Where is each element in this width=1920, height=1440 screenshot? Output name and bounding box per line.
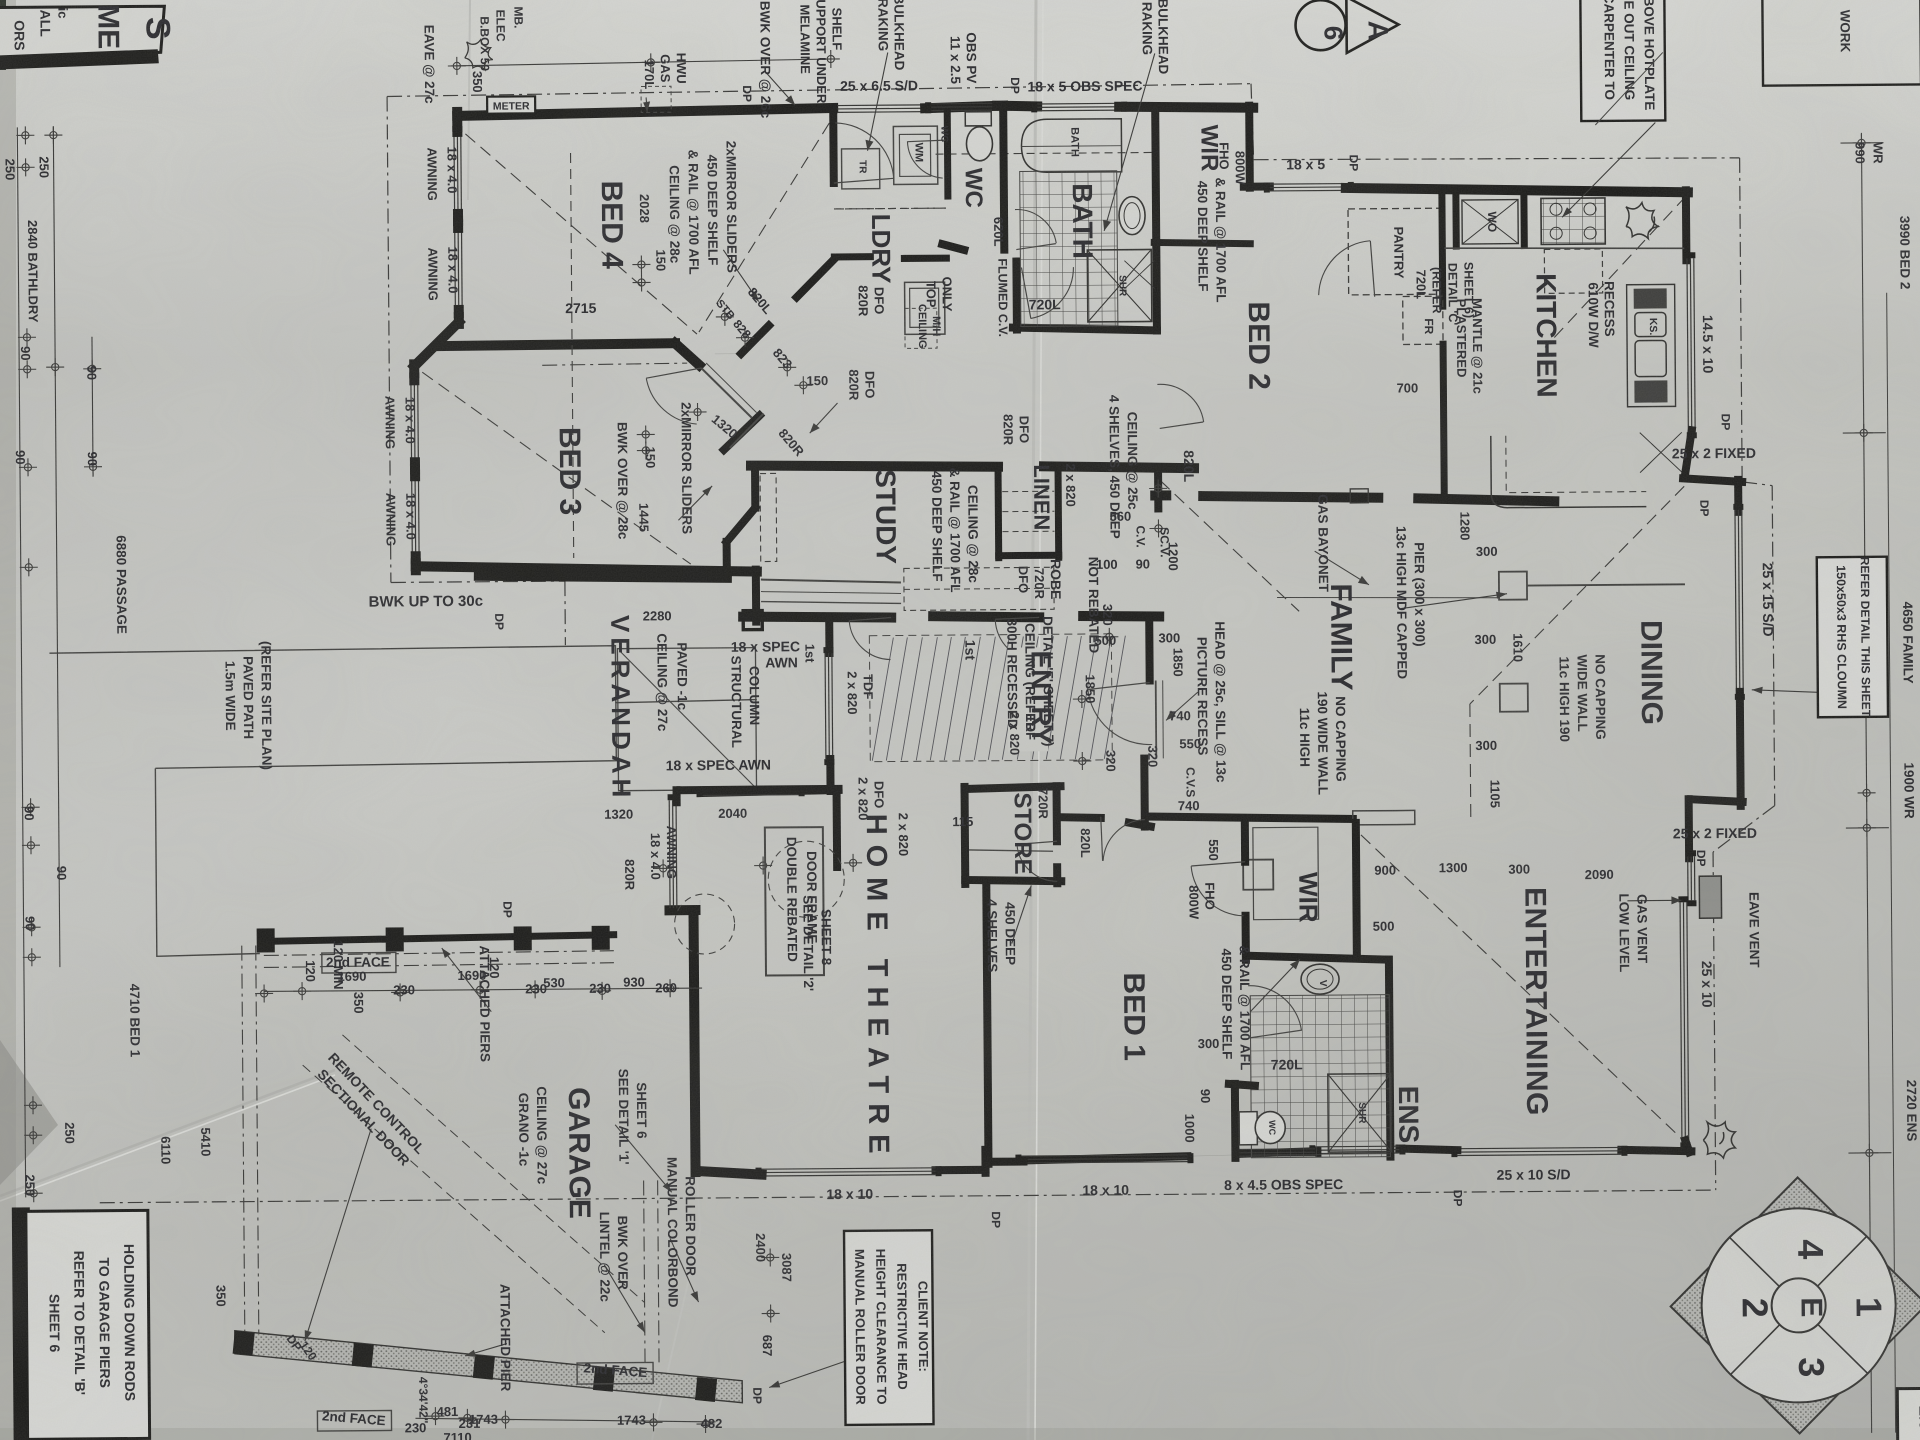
svg-text:PLASTERED: PLASTERED <box>1454 299 1470 378</box>
svg-text:2090: 2090 <box>1585 867 1614 882</box>
svg-text:260: 260 <box>655 980 677 995</box>
svg-text:3: 3 <box>1791 1357 1832 1377</box>
svg-text:NO CAPPING: NO CAPPING <box>1333 696 1349 782</box>
svg-text:1320: 1320 <box>604 807 633 822</box>
svg-text:820R: 820R <box>1001 414 1016 446</box>
svg-text:AWNING: AWNING <box>382 396 397 450</box>
svg-text:482: 482 <box>701 1416 723 1431</box>
svg-text:LINEN: LINEN <box>1029 464 1055 530</box>
svg-text:CEILING: CEILING <box>916 304 928 349</box>
svg-text:DFO: DFO <box>1016 566 1031 594</box>
svg-text:740: 740 <box>1169 708 1191 723</box>
svg-text:WC: WC <box>938 126 949 143</box>
svg-text:CEILING @ 28c: CEILING @ 28c <box>965 485 981 584</box>
svg-text:4: 4 <box>1790 1239 1831 1259</box>
svg-text:KS.: KS. <box>1647 318 1659 336</box>
svg-text:DP: DP <box>1451 1190 1465 1207</box>
svg-text:BATH: BATH <box>1068 127 1080 157</box>
svg-text:& RAIL @ 1700 AFL: & RAIL @ 1700 AFL <box>947 467 963 592</box>
svg-text:150x50x3 RHS CLOUMN: 150x50x3 RHS CLOUMN <box>1834 565 1849 709</box>
svg-text:25 x 15 S/D: 25 x 15 S/D <box>1760 563 1777 637</box>
svg-text:900: 900 <box>1374 863 1396 878</box>
svg-text:WC: WC <box>1267 1120 1277 1136</box>
svg-text:300: 300 <box>1474 632 1496 647</box>
svg-text:CEILING @ 25c: CEILING @ 25c <box>1125 412 1141 511</box>
svg-text:(REFER: (REFER <box>1429 267 1443 314</box>
svg-text:M/H: M/H <box>930 316 942 336</box>
svg-text:18 x 5: 18 x 5 <box>1286 156 1325 172</box>
svg-text:4°34'42": 4°34'42" <box>416 1377 430 1424</box>
svg-text:90: 90 <box>23 916 38 931</box>
svg-text:SEE DETAIL '2': SEE DETAIL '2' <box>800 895 816 991</box>
svg-text:687: 687 <box>760 1335 775 1357</box>
svg-text:230: 230 <box>589 981 611 996</box>
svg-text:SHELF: SHELF <box>829 8 844 51</box>
svg-text:11c HIGH 190: 11c HIGH 190 <box>1557 656 1573 742</box>
svg-text:ONLY: ONLY <box>940 277 955 312</box>
svg-text:DOUBLE REBATED: DOUBLE REBATED <box>784 837 800 962</box>
svg-text:V: V <box>1317 980 1328 987</box>
svg-text:320: 320 <box>1145 746 1160 768</box>
svg-text:FHO: FHO <box>1202 882 1217 910</box>
svg-text:SHR: SHR <box>1117 275 1128 297</box>
svg-text:DP: DP <box>1694 850 1708 867</box>
svg-text:2 x 820: 2 x 820 <box>1007 712 1022 755</box>
svg-text:& RAIL @ 1700 AFL: & RAIL @ 1700 AFL <box>1213 177 1229 302</box>
svg-text:RECESS: RECESS <box>1602 281 1617 337</box>
svg-text:300: 300 <box>1476 544 1498 559</box>
svg-text:350: 350 <box>351 992 366 1014</box>
svg-text:AWNING: AWNING <box>425 247 440 301</box>
svg-text:DP: DP <box>1347 155 1361 172</box>
svg-text:700: 700 <box>1396 380 1418 395</box>
svg-text:LINTEL @ 22c: LINTEL @ 22c <box>597 1212 613 1303</box>
svg-text:OBS PV: OBS PV <box>964 32 979 83</box>
svg-text:350: 350 <box>470 71 485 93</box>
svg-text:FHO: FHO <box>1216 142 1231 170</box>
svg-text:C.V.: C.V. <box>1133 525 1147 547</box>
svg-text:CARPENTER TO: CARPENTER TO <box>1601 0 1617 100</box>
svg-text:ME: ME <box>91 4 124 49</box>
svg-text:720R: 720R <box>1036 788 1051 820</box>
svg-text:BWK UP TO 30c: BWK UP TO 30c <box>369 593 484 611</box>
svg-text:AWN: AWN <box>765 654 798 670</box>
svg-text:13c HIGH MDF CAPPED: 13c HIGH MDF CAPPED <box>1393 526 1409 679</box>
svg-text:1850: 1850 <box>1170 648 1185 677</box>
svg-text:25 x 2 FIXED: 25 x 2 FIXED <box>1673 825 1757 842</box>
svg-text:METER: METER <box>493 100 530 112</box>
svg-text:18 x 4.0: 18 x 4.0 <box>648 833 663 880</box>
svg-text:ROLLER DOOR: ROLLER DOOR <box>683 1176 699 1276</box>
svg-text:COLUMN: COLUMN <box>747 666 762 725</box>
svg-text:820L: 820L <box>1181 450 1197 482</box>
svg-text:990: 990 <box>1852 142 1867 164</box>
svg-text:AWNING: AWNING <box>424 147 439 201</box>
svg-text:BWK OVER @ 26c: BWK OVER @ 26c <box>757 1 773 119</box>
svg-text:BED 4: BED 4 <box>595 180 629 269</box>
svg-text:231: 231 <box>459 1416 481 1431</box>
svg-text:GAS BAYONET: GAS BAYONET <box>1315 494 1331 593</box>
svg-text:90: 90 <box>18 346 33 361</box>
svg-text:HWU: HWU <box>674 53 689 84</box>
svg-text:ATTACHED PIER: ATTACHED PIER <box>497 1284 513 1392</box>
svg-text:7110: 7110 <box>443 1430 471 1440</box>
svg-text:150: 150 <box>806 373 828 388</box>
svg-text:WR: WR <box>1870 142 1885 164</box>
svg-text:DFO: DFO <box>1017 416 1032 444</box>
svg-text:DFO: DFO <box>871 781 886 809</box>
svg-text:DP: DP <box>750 1387 764 1404</box>
svg-text:3990 BED 2: 3990 BED 2 <box>1897 216 1913 290</box>
svg-text:GAS VENT: GAS VENT <box>1634 894 1650 964</box>
svg-text:820L: 820L <box>1078 828 1093 858</box>
svg-text:PIER (300 x 300): PIER (300 x 300) <box>1412 542 1428 646</box>
svg-text:115: 115 <box>952 814 973 829</box>
svg-text:560: 560 <box>1109 509 1131 524</box>
svg-text:AWNING: AWNING <box>383 493 398 547</box>
svg-text:EAVE VENT: EAVE VENT <box>1746 892 1762 968</box>
svg-text:MB.: MB. <box>511 6 525 28</box>
svg-text:230: 230 <box>393 982 415 997</box>
svg-text:150: 150 <box>643 447 658 469</box>
svg-text:2840 BATHLDRY: 2840 BATHLDRY <box>25 220 41 323</box>
svg-text:TO GARAGE PIERS: TO GARAGE PIERS <box>96 1257 113 1388</box>
svg-text:1000: 1000 <box>1182 1114 1197 1143</box>
svg-text:SHEET 8: SHEET 8 <box>818 909 833 966</box>
svg-text:PAVED PATH: PAVED PATH <box>240 656 256 739</box>
svg-text:150: 150 <box>653 249 668 271</box>
svg-text:ATTACHED PIERS: ATTACHED PIERS <box>477 945 493 1062</box>
svg-text:1690: 1690 <box>337 969 366 984</box>
svg-text:HEAD @ 25c, SILL @ 13c: HEAD @ 25c, SILL @ 13c <box>1212 621 1228 783</box>
svg-text:TDF: TDF <box>861 674 876 699</box>
svg-text:FR: FR <box>1422 318 1436 334</box>
svg-text:720L: 720L <box>1271 1056 1303 1072</box>
svg-text:450 DEEP SHELF: 450 DEEP SHELF <box>1219 948 1235 1059</box>
svg-text:GRANO -1c: GRANO -1c <box>516 1093 532 1167</box>
svg-text:4 SHELVES: 4 SHELVES <box>984 899 1000 972</box>
svg-text:250: 250 <box>23 1174 38 1196</box>
svg-text:2040: 2040 <box>718 806 747 821</box>
svg-text:90: 90 <box>13 450 28 465</box>
svg-text:GAS: GAS <box>658 54 673 83</box>
svg-text:1st: 1st <box>962 640 978 661</box>
svg-text:18 x SPEC: 18 x SPEC <box>731 638 800 655</box>
svg-text:450 DEEP: 450 DEEP <box>1002 902 1017 965</box>
svg-text:100: 100 <box>1096 557 1118 572</box>
svg-text:800W: 800W <box>1186 885 1201 920</box>
svg-text:NO CAPPING: NO CAPPING <box>1593 654 1609 740</box>
svg-text:DFO: DFO <box>862 371 877 399</box>
svg-text:DFO: DFO <box>872 287 887 315</box>
svg-text:1200: 1200 <box>1166 542 1181 571</box>
svg-text:190 WIDE WALL: 190 WIDE WALL <box>1315 691 1331 795</box>
svg-text:ic: ic <box>55 8 70 19</box>
svg-text:DP: DP <box>500 901 514 918</box>
svg-text:2 x 820: 2 x 820 <box>1063 463 1078 506</box>
svg-text:MELAMINE: MELAMINE <box>797 4 813 74</box>
svg-text:720L: 720L <box>1029 296 1061 312</box>
svg-text:6880 PASSAGE: 6880 PASSAGE <box>114 535 130 634</box>
svg-text:90: 90 <box>1135 557 1150 572</box>
svg-text:TOP: TOP <box>924 281 939 308</box>
svg-text:18 x 10: 18 x 10 <box>1082 1182 1129 1198</box>
svg-text:(REFER SITE PLAN): (REFER SITE PLAN) <box>258 641 274 770</box>
svg-text:6: 6 <box>1319 26 1349 41</box>
svg-text:18 x 4.0: 18 x 4.0 <box>402 397 417 444</box>
svg-text:HEIGHT CLEARANCE TO: HEIGHT CLEARANCE TO <box>873 1249 889 1405</box>
svg-text:5410: 5410 <box>198 1127 213 1156</box>
svg-text:HOLDING DOWN RODS: HOLDING DOWN RODS <box>121 1244 138 1401</box>
svg-text:450 DEEP SHELF: 450 DEEP SHELF <box>1195 181 1211 292</box>
svg-text:KITCHEN: KITCHEN <box>1531 273 1563 398</box>
svg-text:TR: TR <box>857 160 868 174</box>
svg-text:18 x 4.0: 18 x 4.0 <box>445 246 460 293</box>
svg-text:90: 90 <box>85 452 100 467</box>
svg-text:18 x 10: 18 x 10 <box>826 1186 873 1202</box>
svg-text:ENS: ENS <box>1393 1086 1424 1144</box>
svg-text:720R: 720R <box>1032 568 1047 600</box>
svg-text:1105: 1105 <box>1487 780 1502 808</box>
svg-text:610W D/W: 610W D/W <box>1586 282 1602 348</box>
svg-text:RESTRICTIVE HEAD: RESTRICTIVE HEAD <box>894 1263 910 1390</box>
svg-text:1900 WR: 1900 WR <box>1901 762 1916 819</box>
svg-text:1: 1 <box>1849 1297 1890 1317</box>
svg-text:25 x 2 FIXED: 25 x 2 FIXED <box>1672 445 1756 462</box>
svg-text:DP: DP <box>989 1211 1003 1228</box>
svg-text:1445: 1445 <box>636 503 651 532</box>
svg-text:820R: 820R <box>846 369 861 401</box>
svg-text:820R: 820R <box>856 285 871 317</box>
svg-text:500: 500 <box>1373 919 1395 934</box>
svg-text:MANUAL COLORBOND: MANUAL COLORBOND <box>664 1157 680 1308</box>
svg-text:90: 90 <box>1198 1089 1213 1104</box>
svg-text:230: 230 <box>525 981 547 996</box>
svg-text:18 x SPEC AWN: 18 x SPEC AWN <box>666 756 771 773</box>
svg-text:BWK OVER @ 28c: BWK OVER @ 28c <box>615 422 631 540</box>
svg-text:250: 250 <box>3 159 18 181</box>
svg-text:FAMILY: FAMILY <box>1324 583 1358 691</box>
svg-text:90: 90 <box>84 366 99 381</box>
svg-text:ALL: ALL <box>37 9 53 37</box>
svg-text:C.V.S: C.V.S <box>1183 767 1197 797</box>
svg-text:820R: 820R <box>622 859 637 891</box>
svg-text:230: 230 <box>405 1420 427 1435</box>
svg-text:WM: WM <box>912 142 924 162</box>
svg-text:11 x 2.5: 11 x 2.5 <box>948 36 963 85</box>
svg-text:1850: 1850 <box>1083 674 1098 703</box>
svg-text:CLIENT NOTE:: CLIENT NOTE: <box>915 1281 931 1372</box>
svg-text:LOW LEVEL: LOW LEVEL <box>1616 893 1632 972</box>
svg-text:DP: DP <box>1719 414 1733 431</box>
svg-text:2: 2 <box>1735 1298 1776 1318</box>
svg-text:STORE: STORE <box>1009 792 1037 874</box>
svg-text:18 x 4.0: 18 x 4.0 <box>444 146 459 193</box>
svg-text:11c HIGH: 11c HIGH <box>1297 708 1312 767</box>
svg-text:3087: 3087 <box>779 1253 794 1282</box>
svg-text:PAVED -1c: PAVED -1c <box>674 642 690 710</box>
svg-text:500: 500 <box>1094 633 1116 648</box>
svg-text:PANTRY: PANTRY <box>1391 226 1406 278</box>
svg-text:FLUMED C.V.: FLUMED C.V. <box>995 258 1010 337</box>
svg-text:300: 300 <box>1508 862 1530 877</box>
svg-text:STUDY: STUDY <box>870 469 902 564</box>
svg-text:2720 ENS: 2720 ENS <box>1904 1080 1919 1142</box>
svg-text:2 x 820: 2 x 820 <box>845 671 860 714</box>
svg-text:8 x 4.5 OBS SPEC: 8 x 4.5 OBS SPEC <box>1224 1176 1343 1193</box>
svg-text:E: E <box>1795 1297 1828 1317</box>
svg-text:930: 930 <box>623 974 645 989</box>
svg-text:320: 320 <box>1103 750 1118 772</box>
svg-text:2 x 820: 2 x 820 <box>896 813 911 856</box>
svg-text:2xMIRROR SLIDERS: 2xMIRROR SLIDERS <box>723 141 739 273</box>
svg-text:300: 300 <box>1475 738 1497 753</box>
svg-text:720L: 720L <box>1413 269 1428 299</box>
svg-text:BWK OVER: BWK OVER <box>615 1215 631 1290</box>
svg-text:DP: DP <box>492 613 506 630</box>
svg-text:SUPPORT UNDER: SUPPORT UNDER <box>813 0 829 104</box>
svg-text:BULKHEAD: BULKHEAD <box>1155 0 1171 75</box>
svg-text:SHEET 6: SHEET 6 <box>46 1294 62 1353</box>
svg-text:550: 550 <box>1206 839 1221 861</box>
svg-text:BED 3: BED 3 <box>553 427 587 516</box>
svg-text:SHR: SHR <box>1356 1102 1367 1124</box>
svg-text:S: S <box>138 17 176 40</box>
svg-text:170L: 170L <box>642 60 657 90</box>
svg-text:WIDE WALL: WIDE WALL <box>1575 654 1591 731</box>
svg-text:WO: WO <box>1485 211 1499 232</box>
svg-text:6110: 6110 <box>158 1136 173 1164</box>
svg-text:BULKHEAD: BULKHEAD <box>891 0 907 71</box>
svg-text:1300: 1300 <box>1439 860 1468 875</box>
svg-text:1280: 1280 <box>1457 512 1472 541</box>
svg-text:DP: DP <box>1697 500 1711 517</box>
svg-text:450 DEEP SHELF: 450 DEEP SHELF <box>705 154 721 265</box>
svg-text:481: 481 <box>437 1404 459 1419</box>
svg-text:DP: DP <box>1008 77 1022 94</box>
svg-text:REFER DETAIL THIS SHEET: REFER DETAIL THIS SHEET <box>1858 557 1873 718</box>
svg-text:250: 250 <box>37 156 52 178</box>
svg-text:350: 350 <box>213 1285 228 1307</box>
svg-text:1610: 1610 <box>1510 633 1525 662</box>
svg-text:14.5 x 10: 14.5 x 10 <box>1700 315 1716 374</box>
svg-text:ABOVE HOTPLATE: ABOVE HOTPLATE <box>1641 0 1657 110</box>
svg-text:25 x 10: 25 x 10 <box>1699 961 1715 1008</box>
svg-text:MANTLE @ 21c: MANTLE @ 21c <box>1470 298 1486 394</box>
svg-text:BED 2: BED 2 <box>1242 301 1276 390</box>
svg-text:4650 FAMILY: 4650 FAMILY <box>1900 601 1916 683</box>
svg-text:90: 90 <box>54 866 69 881</box>
svg-text:320: 320 <box>1100 604 1115 626</box>
svg-text:ROBE: ROBE <box>1048 559 1064 600</box>
svg-text:300: 300 <box>1158 630 1180 645</box>
svg-text:DINING: DINING <box>1634 620 1668 725</box>
svg-text:EN: EN <box>1915 1405 1920 1427</box>
svg-text:MANUAL ROLLER DOOR: MANUAL ROLLER DOOR <box>852 1249 868 1405</box>
svg-text:2028: 2028 <box>637 194 652 223</box>
svg-text:250: 250 <box>62 1122 77 1144</box>
svg-text:2400: 2400 <box>753 1233 768 1262</box>
svg-text:& RAIL @ 1700 AFL: & RAIL @ 1700 AFL <box>686 150 702 275</box>
svg-text:4710 BED 1: 4710 BED 1 <box>127 984 143 1058</box>
svg-text:LDRY: LDRY <box>866 214 897 284</box>
svg-text:& RAIL @ 1700 AFL: & RAIL @ 1700 AFL <box>1237 945 1253 1070</box>
svg-text:VERANDAH: VERANDAH <box>605 615 636 803</box>
svg-text:ENTERTAINING: ENTERTAINING <box>1518 887 1553 1116</box>
svg-text:25 x 6.5 S/D: 25 x 6.5 S/D <box>840 77 918 94</box>
svg-text:EAVE @ 27c: EAVE @ 27c <box>422 25 438 105</box>
svg-text:740: 740 <box>1178 798 1200 813</box>
svg-text:RAKING: RAKING <box>875 0 890 51</box>
svg-text:25 x 10 S/D: 25 x 10 S/D <box>1497 1166 1571 1183</box>
svg-text:ELEC: ELEC <box>493 10 507 42</box>
svg-text:120: 120 <box>303 960 318 982</box>
svg-text:2280: 2280 <box>643 608 672 623</box>
svg-text:18 x 5 OBS SPEC: 18 x 5 OBS SPEC <box>1027 78 1142 95</box>
svg-text:620L: 620L <box>991 217 1006 247</box>
svg-text:CEILING @ 27c: CEILING @ 27c <box>654 633 670 732</box>
svg-text:GARAGE: GARAGE <box>562 1087 596 1219</box>
svg-text:RAKING: RAKING <box>1139 2 1154 55</box>
svg-text:300: 300 <box>1198 1036 1220 1051</box>
svg-text:SEE DETAIL '1': SEE DETAIL '1' <box>616 1069 632 1165</box>
svg-text:WC: WC <box>960 168 987 208</box>
svg-text:2xMIRROR SLIDERS: 2xMIRROR SLIDERS <box>678 402 694 534</box>
svg-text:DP: DP <box>740 85 754 102</box>
svg-text:550: 550 <box>1179 736 1201 751</box>
svg-text:AWNING: AWNING <box>664 825 679 879</box>
svg-text:450 DEEP SHELF: 450 DEEP SHELF <box>929 471 945 582</box>
svg-text:1743: 1743 <box>617 1412 646 1427</box>
svg-text:WORK: WORK <box>1837 10 1852 53</box>
svg-text:18 x 4.0: 18 x 4.0 <box>403 493 418 540</box>
svg-text:DETAIL 'F' SHEET 7): DETAIL 'F' SHEET 7) <box>1040 616 1056 747</box>
svg-text:2715: 2715 <box>565 300 596 316</box>
svg-text:TDF: TDF <box>1023 715 1038 740</box>
svg-text:HOME THEATRE: HOME THEATRE <box>860 814 895 1164</box>
svg-text:SHEET 6: SHEET 6 <box>634 1082 649 1139</box>
svg-text:ME OUT CEILING: ME OUT CEILING <box>1621 0 1637 100</box>
svg-text:A: A <box>1363 20 1394 40</box>
svg-text:STRUCTURAL: STRUCTURAL <box>728 656 744 748</box>
svg-text:1.5m WIDE: 1.5m WIDE <box>223 661 239 731</box>
svg-text:WIR: WIR <box>1293 872 1323 923</box>
svg-text:800W: 800W <box>1233 151 1248 186</box>
svg-text:BED 1: BED 1 <box>1117 972 1151 1061</box>
svg-text:1st: 1st <box>802 644 817 664</box>
svg-text:BATH: BATH <box>1067 183 1099 259</box>
svg-text:REFER TO DETAIL 'B': REFER TO DETAIL 'B' <box>71 1251 88 1395</box>
svg-text:CEILING @ 27c: CEILING @ 27c <box>534 1086 550 1185</box>
svg-text:ORS: ORS <box>11 20 27 50</box>
svg-text:90: 90 <box>22 806 37 821</box>
